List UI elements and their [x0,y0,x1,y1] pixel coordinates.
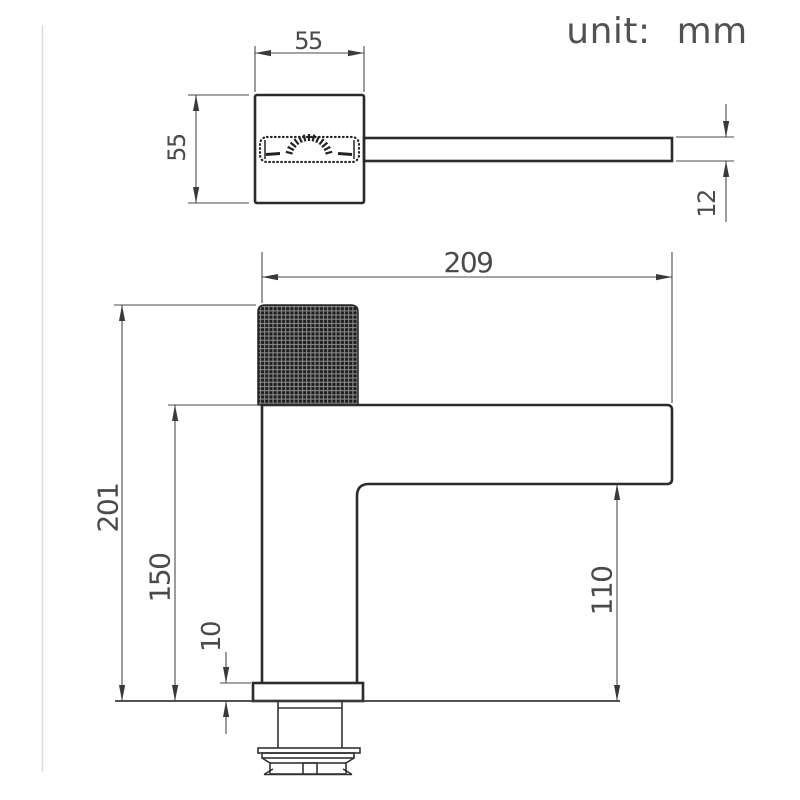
drain-shank-assembly [258,702,360,775]
dim-55-depth: 55 [163,95,249,203]
dim-110-clearance: 110 [586,484,621,701]
dim-label-spout-height-150: 150 [144,554,177,603]
dim-label-width-55: 55 [294,27,322,55]
dim-label-total-height-201: 201 [92,484,125,533]
front-view-body-outline [262,405,672,683]
dim-201-total-height: 201 [92,305,257,701]
top-view-drawing: 55 55 12 [163,27,734,222]
dim-label-clearance-110: 110 [586,567,619,616]
drawing-canvas: 55 55 12 unit: mm [0,0,800,800]
dim-55-width: 55 [255,27,364,92]
front-view-base-plate [253,683,363,701]
dim-label-spout-thickness-12: 12 [693,190,721,218]
dim-label-base-plate-10: 10 [197,622,227,652]
top-view-spout-bar [364,138,672,161]
dim-150-spout-height: 150 [144,405,261,701]
front-view-drawing: 209 201 150 110 [92,246,673,775]
dim-label-depth-55: 55 [163,134,191,162]
dim-10-base-plate: 10 [197,622,251,734]
unit-label: unit: mm [566,11,747,52]
dim-12-spout-thickness: 12 [676,104,734,222]
faucet-dimension-drawing: 55 55 12 unit: mm [0,0,800,800]
dim-label-spout-reach-209: 209 [444,246,493,279]
front-view-knurled-handle [258,305,358,405]
